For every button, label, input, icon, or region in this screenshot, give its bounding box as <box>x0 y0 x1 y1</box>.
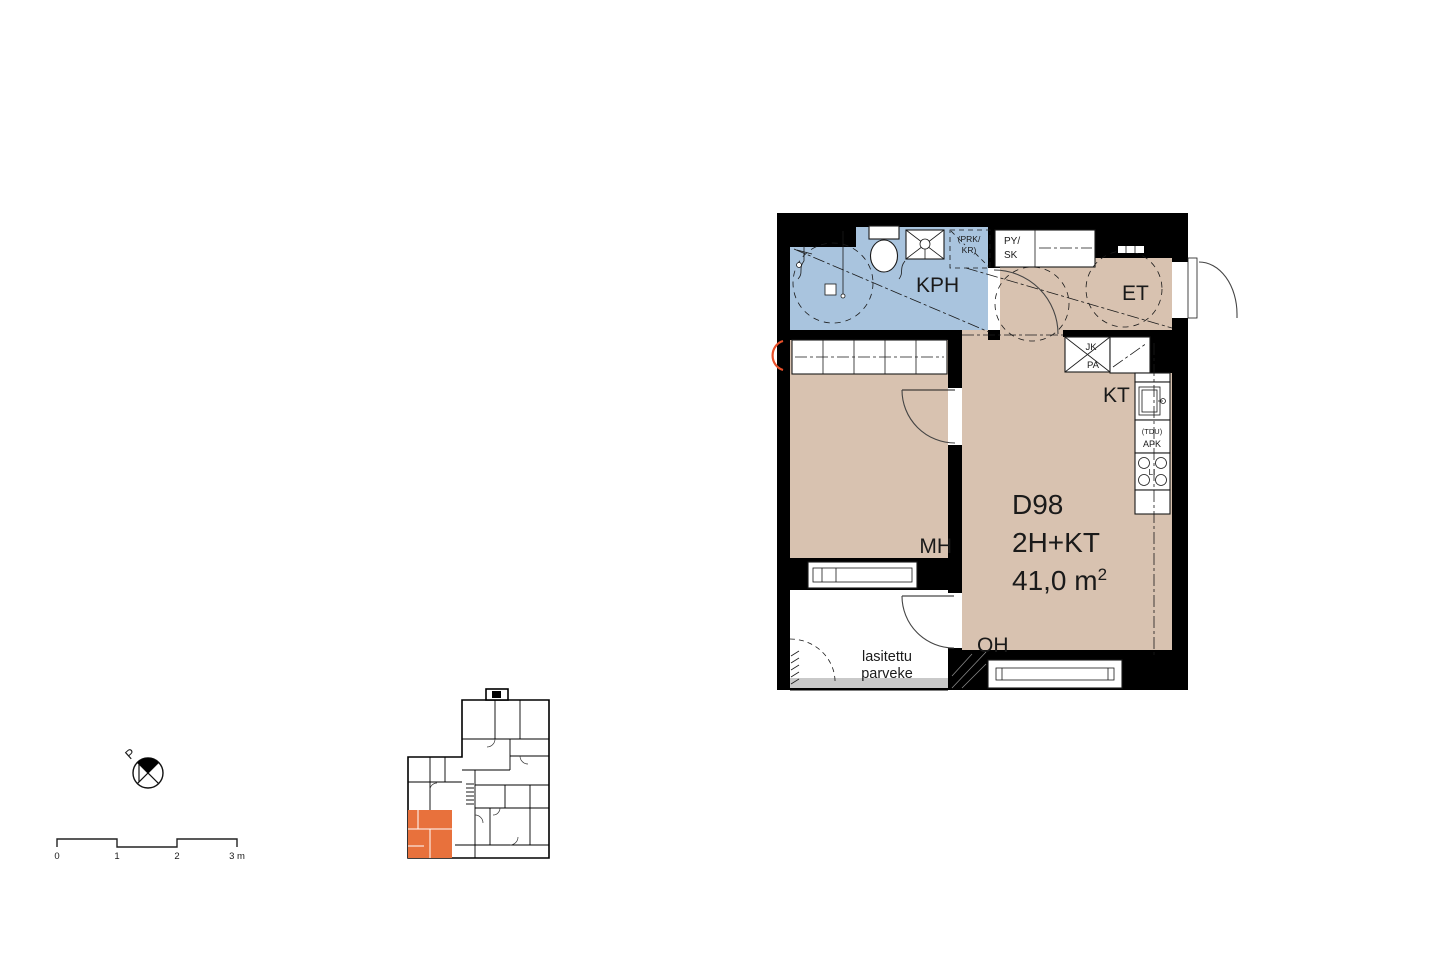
kitchen-label: KT <box>1103 384 1130 407</box>
scale-tick-2: 2 <box>174 851 179 862</box>
freezer-label: PA <box>1087 360 1100 371</box>
dishwasher-label: APK <box>1143 439 1161 449</box>
apartment-id: D98 <box>1012 489 1063 520</box>
bedroom-balcony-window <box>808 562 917 588</box>
entry-closet: PY/ SK <box>995 230 1095 267</box>
fridge-label: JK <box>1085 342 1097 353</box>
corner-cabinet <box>1110 337 1150 373</box>
scale-tick-3: 3 m <box>229 851 245 862</box>
entry-closet-label-2: SK <box>1004 250 1018 261</box>
living-room-label: OH <box>977 634 1009 657</box>
north-arrow: P <box>122 745 163 788</box>
balcony-label-1: lasitettu <box>862 649 912 665</box>
bedroom-closets <box>792 340 947 374</box>
key-plan <box>408 689 549 858</box>
vent-mark <box>1118 246 1144 253</box>
floor-plan-page: PY/ SK (PRK/ KR) <box>0 0 1440 959</box>
apartment-type: 2H+KT <box>1012 527 1100 558</box>
floor-plan-canvas: PY/ SK (PRK/ KR) <box>0 0 1440 959</box>
sink-icon <box>1135 382 1170 420</box>
dishwasher-icon: (TDU) APK <box>1135 420 1170 453</box>
main-floor-plan: PY/ SK (PRK/ KR) <box>773 213 1237 691</box>
entry-label: ET <box>1122 282 1149 305</box>
toilet-icon <box>869 226 899 272</box>
bathroom-label: KPH <box>916 274 959 297</box>
bedroom-door-opening <box>948 388 962 445</box>
north-label: P <box>122 745 138 762</box>
floor-drain <box>825 284 836 295</box>
entry-door-opening <box>1172 262 1188 318</box>
entry-door <box>1188 258 1237 318</box>
dishwasher-reserve-label: (TDU) <box>1142 427 1163 436</box>
scale-tick-0: 0 <box>54 851 59 862</box>
washer-reserve-label-1: (PRK/ <box>958 234 981 244</box>
bedroom-label: MH <box>919 535 952 558</box>
entry-closet-label-1: PY/ <box>1004 236 1020 247</box>
stove-icon: LI <box>1135 453 1170 490</box>
bathroom-door-opening <box>988 268 1000 330</box>
scale-tick-1: 1 <box>114 851 119 862</box>
scale-bar: 0 1 2 3 m <box>54 839 245 862</box>
living-room-window <box>988 660 1122 688</box>
washer-reserve-label-2: KR) <box>962 245 977 255</box>
apartment-area: 41,0 m2 <box>1012 565 1107 596</box>
balcony-door-opening <box>948 593 962 648</box>
balcony-label-2: parveke <box>861 666 913 682</box>
fridge-freezer-icon: JK PA <box>1065 337 1110 372</box>
